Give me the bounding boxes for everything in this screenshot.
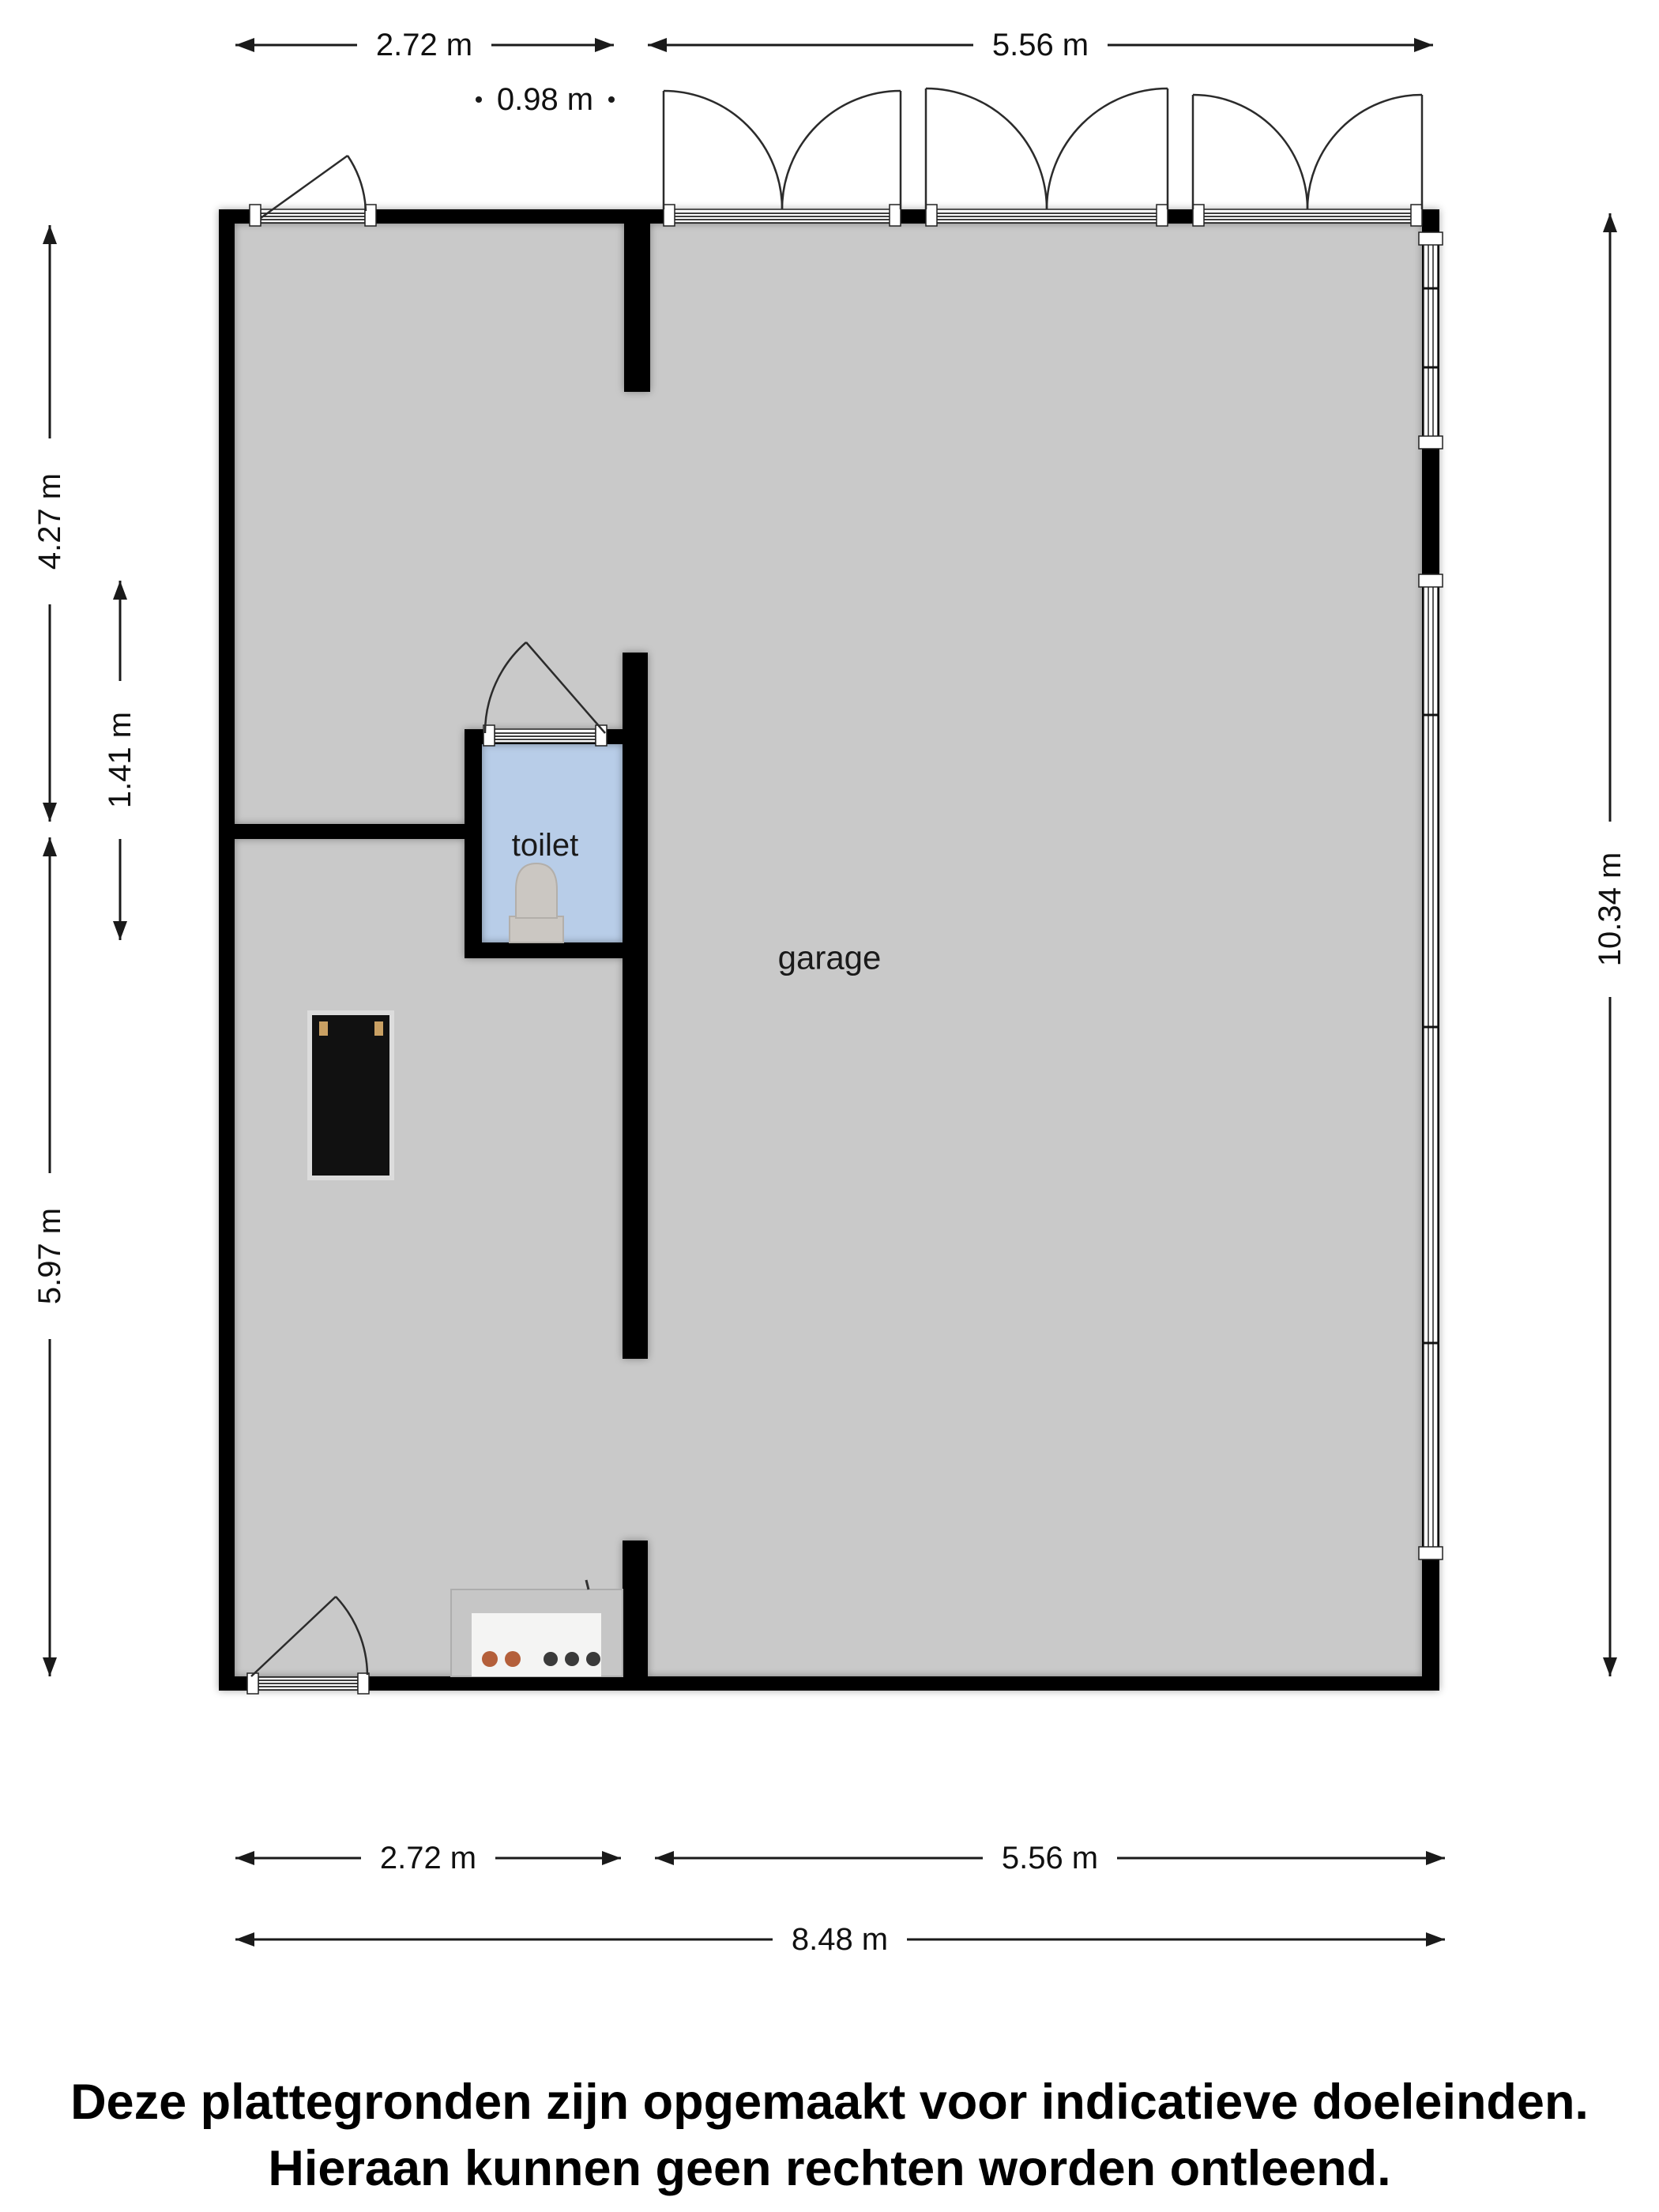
garage-door-3 [1193,95,1422,226]
svg-text:0.98 m: 0.98 m [497,82,593,117]
window-upper-jamb [1419,436,1443,449]
wall-stub-top [624,224,650,392]
door-swing-arc [348,156,366,211]
window-upper [1424,239,1438,442]
window-upper-jamb [1419,232,1443,245]
wall-toilet-bottom [465,942,624,958]
wall-toilet-left [465,729,482,958]
dim-left-height-toilet: 1.41 m [103,581,137,940]
window-lower [1424,581,1438,1553]
door-swing-arc [1193,95,1307,209]
door-swing-arc [926,88,1047,209]
door-leaf [261,156,348,218]
dim-left-height-upper: 4.27 m [32,225,67,822]
garage-door-1 [664,91,901,226]
svg-text:8.48 m: 8.48 m [792,1922,888,1957]
window-lower-jamb [1419,1547,1443,1559]
toilet-fixture-icon [510,863,563,942]
dim-bottom-width-total: 8.48 m [235,1922,1445,1957]
floor-plan-page: garage toilet 2.72 m 5.56 m 0.98 m [0,0,1659,2212]
svg-text:2.72 m: 2.72 m [380,1841,476,1875]
wall-center-vertical [623,653,648,1359]
disclaimer-line-1: Deze plattegronden zijn opgemaakt voor i… [70,2075,1589,2130]
svg-text:4.27 m: 4.27 m [32,473,67,570]
svg-text:5.97 m: 5.97 m [32,1208,67,1304]
door-swing-arc [1307,95,1422,209]
dim-left-height-lower: 5.97 m [32,837,67,1676]
svg-text:1.41 m: 1.41 m [103,712,137,808]
svg-text:5.56 m: 5.56 m [1002,1841,1098,1875]
svg-text:2.72 m: 2.72 m [376,28,472,62]
wall-bottom [219,1676,1439,1691]
dim-top-width-right: 5.56 m [648,28,1433,62]
knob-orange [505,1651,521,1667]
svg-text:10.34 m: 10.34 m [1593,852,1627,967]
dim-top-width-left: 2.72 m [235,28,614,62]
knob-orange [482,1651,498,1667]
svg-text:5.56 m: 5.56 m [992,28,1089,62]
garage-door-2 [926,88,1168,226]
dim-bottom-width-left: 2.72 m [235,1841,621,1875]
door-swing-arc [782,91,901,209]
dim-bottom-width-right: 5.56 m [655,1841,1445,1875]
floor-plan-canvas: garage toilet 2.72 m 5.56 m 0.98 m [0,0,1659,2212]
cabinet-icon [307,1010,394,1180]
door-top-left [250,156,376,226]
knob-dark [544,1652,558,1666]
wall-interior-left [233,824,466,839]
door-jamb [365,205,376,226]
window-lower-jamb [1419,574,1443,587]
dim-top-door-width: 0.98 m [476,82,615,117]
knob-dark [586,1652,600,1666]
disclaimer-line-2: Hieraan kunnen geen rechten worden ontle… [268,2141,1390,2196]
counter-appliance-icon [451,1580,623,1676]
dim-right-height-total: 10.34 m [1593,213,1627,1676]
door-jamb [250,205,261,226]
knob-dark [565,1652,579,1666]
wall-stub-bottom [623,1540,648,1680]
garage-room-label: garage [778,939,882,976]
door-swing-arc [664,91,782,209]
toilet-room-label: toilet [512,828,579,863]
wall-left [219,209,235,1691]
door-swing-arc [1047,88,1168,209]
